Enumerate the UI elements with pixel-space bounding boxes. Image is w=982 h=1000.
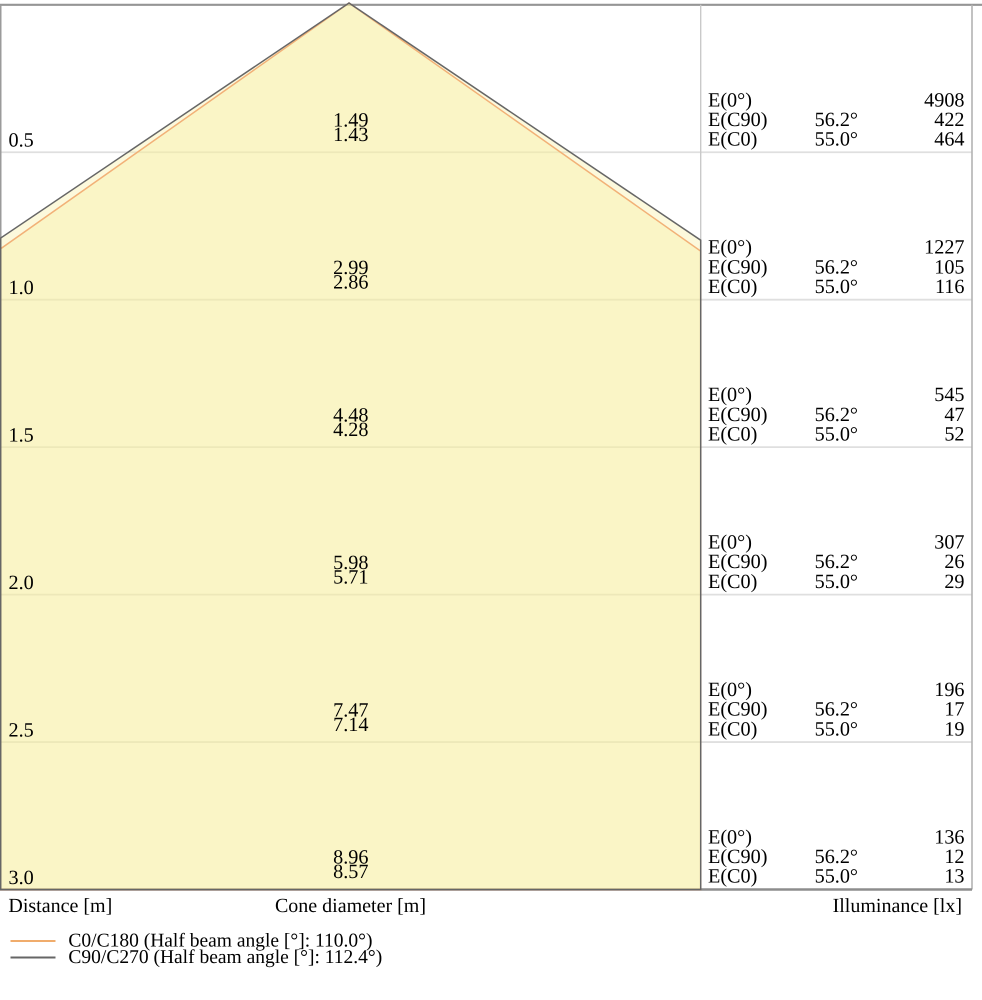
svg-text:55.0°: 55.0° <box>815 276 858 298</box>
svg-text:E(C0): E(C0) <box>708 571 757 593</box>
svg-text:0.5: 0.5 <box>9 130 34 152</box>
svg-text:55.0°: 55.0° <box>815 866 858 888</box>
svg-text:2.5: 2.5 <box>9 719 34 741</box>
svg-text:55.0°: 55.0° <box>815 571 858 593</box>
svg-text:8.57: 8.57 <box>333 861 368 883</box>
svg-text:13: 13 <box>944 866 964 888</box>
svg-text:Cone diameter [m]: Cone diameter [m] <box>275 895 426 917</box>
svg-text:19: 19 <box>944 718 964 740</box>
svg-text:Illuminance [lx]: Illuminance [lx] <box>833 895 962 917</box>
svg-text:464: 464 <box>934 129 964 151</box>
svg-text:C90/C270 (Half beam angle [°]:: C90/C270 (Half beam angle [°]: 112.4°) <box>68 947 382 968</box>
svg-text:116: 116 <box>935 276 965 298</box>
svg-text:52: 52 <box>944 423 964 445</box>
svg-text:55.0°: 55.0° <box>815 423 858 445</box>
svg-text:Distance [m]: Distance [m] <box>8 895 112 917</box>
svg-text:2.86: 2.86 <box>333 271 368 293</box>
svg-text:4.28: 4.28 <box>333 419 368 441</box>
svg-text:5.71: 5.71 <box>333 566 368 588</box>
svg-text:1.43: 1.43 <box>333 124 368 146</box>
svg-text:E(C0): E(C0) <box>708 866 757 888</box>
svg-text:E(C0): E(C0) <box>708 129 757 151</box>
svg-text:E(C0): E(C0) <box>708 423 757 445</box>
svg-text:55.0°: 55.0° <box>815 129 858 151</box>
svg-text:55.0°: 55.0° <box>815 718 858 740</box>
svg-text:7.14: 7.14 <box>333 714 368 736</box>
svg-text:3.0: 3.0 <box>9 867 34 889</box>
svg-text:2.0: 2.0 <box>9 572 34 594</box>
svg-text:E(C0): E(C0) <box>708 718 757 740</box>
svg-text:29: 29 <box>944 571 964 593</box>
svg-text:1.0: 1.0 <box>9 277 34 299</box>
svg-text:E(C0): E(C0) <box>708 276 757 298</box>
svg-text:1.5: 1.5 <box>9 425 34 447</box>
